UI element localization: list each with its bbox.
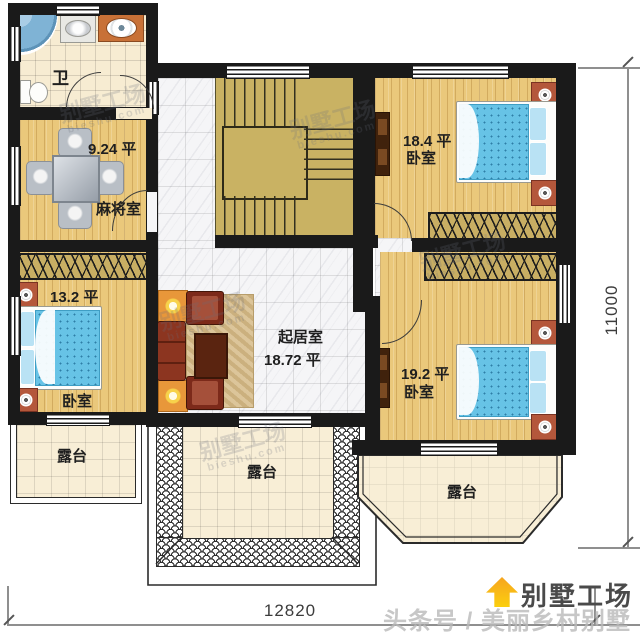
pillow: [20, 349, 35, 385]
dimension-width: 12820: [240, 601, 340, 621]
wall: [365, 296, 380, 443]
sink-counter-icon: [98, 14, 144, 42]
window: [9, 146, 21, 206]
window: [226, 64, 310, 79]
label-terrace-center: 露台: [247, 461, 277, 482]
label-terrace-left: 露台: [57, 445, 87, 466]
bed-left-blanket: [35, 310, 55, 384]
armchair: [186, 376, 224, 410]
hallway-floor: [158, 78, 215, 248]
wall: [215, 235, 378, 248]
room-label-living: 起居室: [278, 326, 323, 347]
window: [56, 4, 100, 16]
pillow: [529, 142, 547, 176]
coffee-table: [194, 333, 228, 379]
pillow: [529, 382, 547, 414]
side-table-lamp: [158, 380, 188, 412]
pillow: [529, 350, 547, 382]
room-label-bathroom: 卫: [52, 64, 69, 89]
mahjong-stool-bottom: [58, 200, 92, 229]
window: [9, 296, 21, 356]
mahjong-table: [52, 155, 100, 203]
wall: [8, 240, 158, 252]
nightstand: [531, 320, 558, 346]
wardrobe-left-bedroom: [18, 253, 148, 280]
pillow: [529, 107, 547, 141]
nightstand: [531, 414, 558, 440]
toilet-bowl-icon: [29, 82, 48, 103]
dimension-line-right-bottom: [578, 547, 640, 549]
dimension-tick: [622, 56, 633, 67]
stair-treads-lower: [224, 196, 304, 235]
nightstand: [531, 180, 558, 206]
window: [557, 264, 571, 324]
wall: [556, 63, 576, 455]
area-label-bedroom-left: 13.2 平: [50, 286, 98, 307]
mahjong-stool-left: [26, 161, 55, 195]
wall: [353, 248, 373, 300]
wall: [353, 63, 375, 240]
floor-plan: 卫 9.24 平 麻将室 13.2 平 卧室 18.4 平 卧室 起居室 18.…: [0, 0, 640, 639]
room-label-mahjong: 麻将室: [96, 198, 141, 219]
window: [46, 413, 110, 426]
dimension-height: 11000: [602, 280, 622, 340]
door-gap: [147, 192, 157, 232]
room-label-bedroom-top-right: 卧室: [406, 147, 436, 168]
dimension-line-right: [627, 67, 629, 549]
area-label-mahjong: 9.24 平: [88, 138, 136, 159]
wall: [146, 107, 158, 425]
dimension-line-right-top: [578, 67, 640, 69]
window: [9, 26, 21, 62]
room-label-bedroom-bottom-right: 卧室: [404, 381, 434, 402]
pillow: [20, 311, 35, 347]
area-label-living: 18.72 平: [264, 349, 321, 370]
window: [420, 441, 498, 456]
byline-watermark: 头条号 / 美丽乡村别墅: [383, 601, 631, 636]
room-label-bedroom-left: 卧室: [62, 390, 92, 411]
window: [412, 64, 509, 79]
label-terrace-bay: 露台: [447, 481, 477, 502]
washbasin-icon: [60, 15, 96, 43]
